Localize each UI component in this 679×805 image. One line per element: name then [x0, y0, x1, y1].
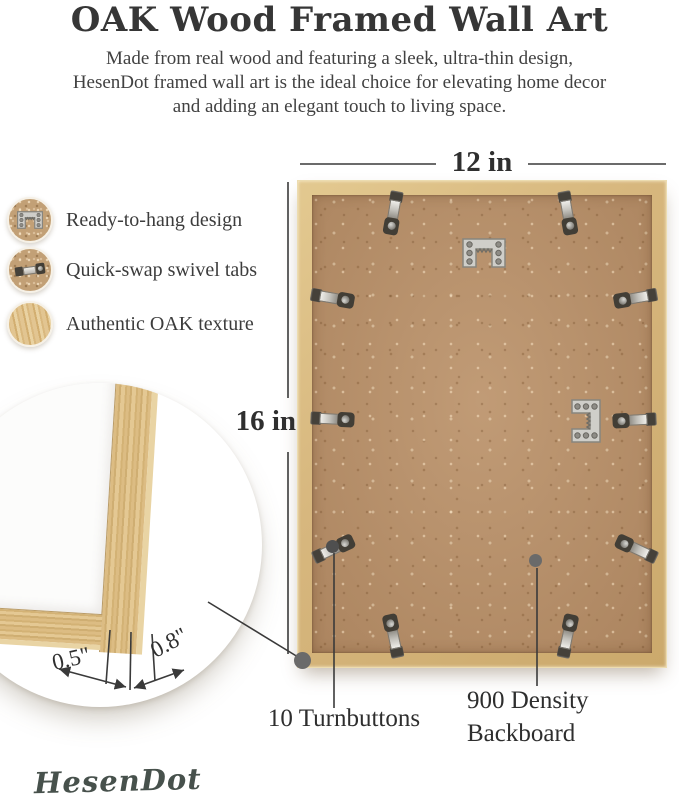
description-line: Made from real wood and featuring a slee…: [20, 47, 659, 71]
backboard-callout-line1: 900 Density: [467, 684, 589, 717]
frame-back-view: [297, 180, 667, 668]
description-line: and adding an elegant touch to living sp…: [20, 95, 659, 119]
turnbutton-icon: [612, 411, 657, 428]
page-title: OAK Wood Framed Wall Art: [0, 0, 679, 40]
swivel-tab-icon: [7, 247, 53, 293]
feature-ready-to-hang: Ready-to-hang design: [7, 197, 242, 243]
product-description: Made from real wood and featuring a slee…: [20, 47, 659, 119]
feature-oak-texture: Authentic OAK texture: [7, 301, 254, 347]
corner-callout-dot: [294, 652, 311, 669]
brand-logo: HesenDot: [34, 762, 202, 800]
turnbutton-callout-dot: [326, 540, 339, 553]
oak-texture-icon: [7, 301, 53, 347]
feature-label: Quick-swap swivel tabs: [66, 259, 257, 282]
turnbuttons-callout-label: 10 Turnbuttons: [258, 702, 430, 735]
sawtooth-hanger-icon: [571, 399, 601, 443]
feature-label: Ready-to-hang design: [66, 209, 242, 232]
sawtooth-hanger-icon: [7, 197, 53, 243]
feature-label: Authentic OAK texture: [66, 313, 254, 336]
turnbutton-icon: [310, 410, 355, 427]
width-dimension-label: 12 in: [432, 146, 532, 179]
backboard-callout-dot: [529, 554, 542, 567]
height-dimension-label: 16 in: [216, 405, 296, 438]
sawtooth-hanger-icon: [462, 238, 506, 268]
canvas-front: [0, 383, 117, 614]
product-infographic: OAK Wood Framed Wall Art Made from real …: [0, 0, 679, 805]
backboard-callout-label: 900 Density Backboard: [467, 684, 589, 750]
backboard-callout-line2: Backboard: [467, 717, 589, 750]
feature-swivel-tabs: Quick-swap swivel tabs: [7, 247, 257, 293]
frame-corner-detail: [0, 383, 177, 656]
description-line: HesenDot framed wall art is the ideal ch…: [20, 71, 659, 95]
